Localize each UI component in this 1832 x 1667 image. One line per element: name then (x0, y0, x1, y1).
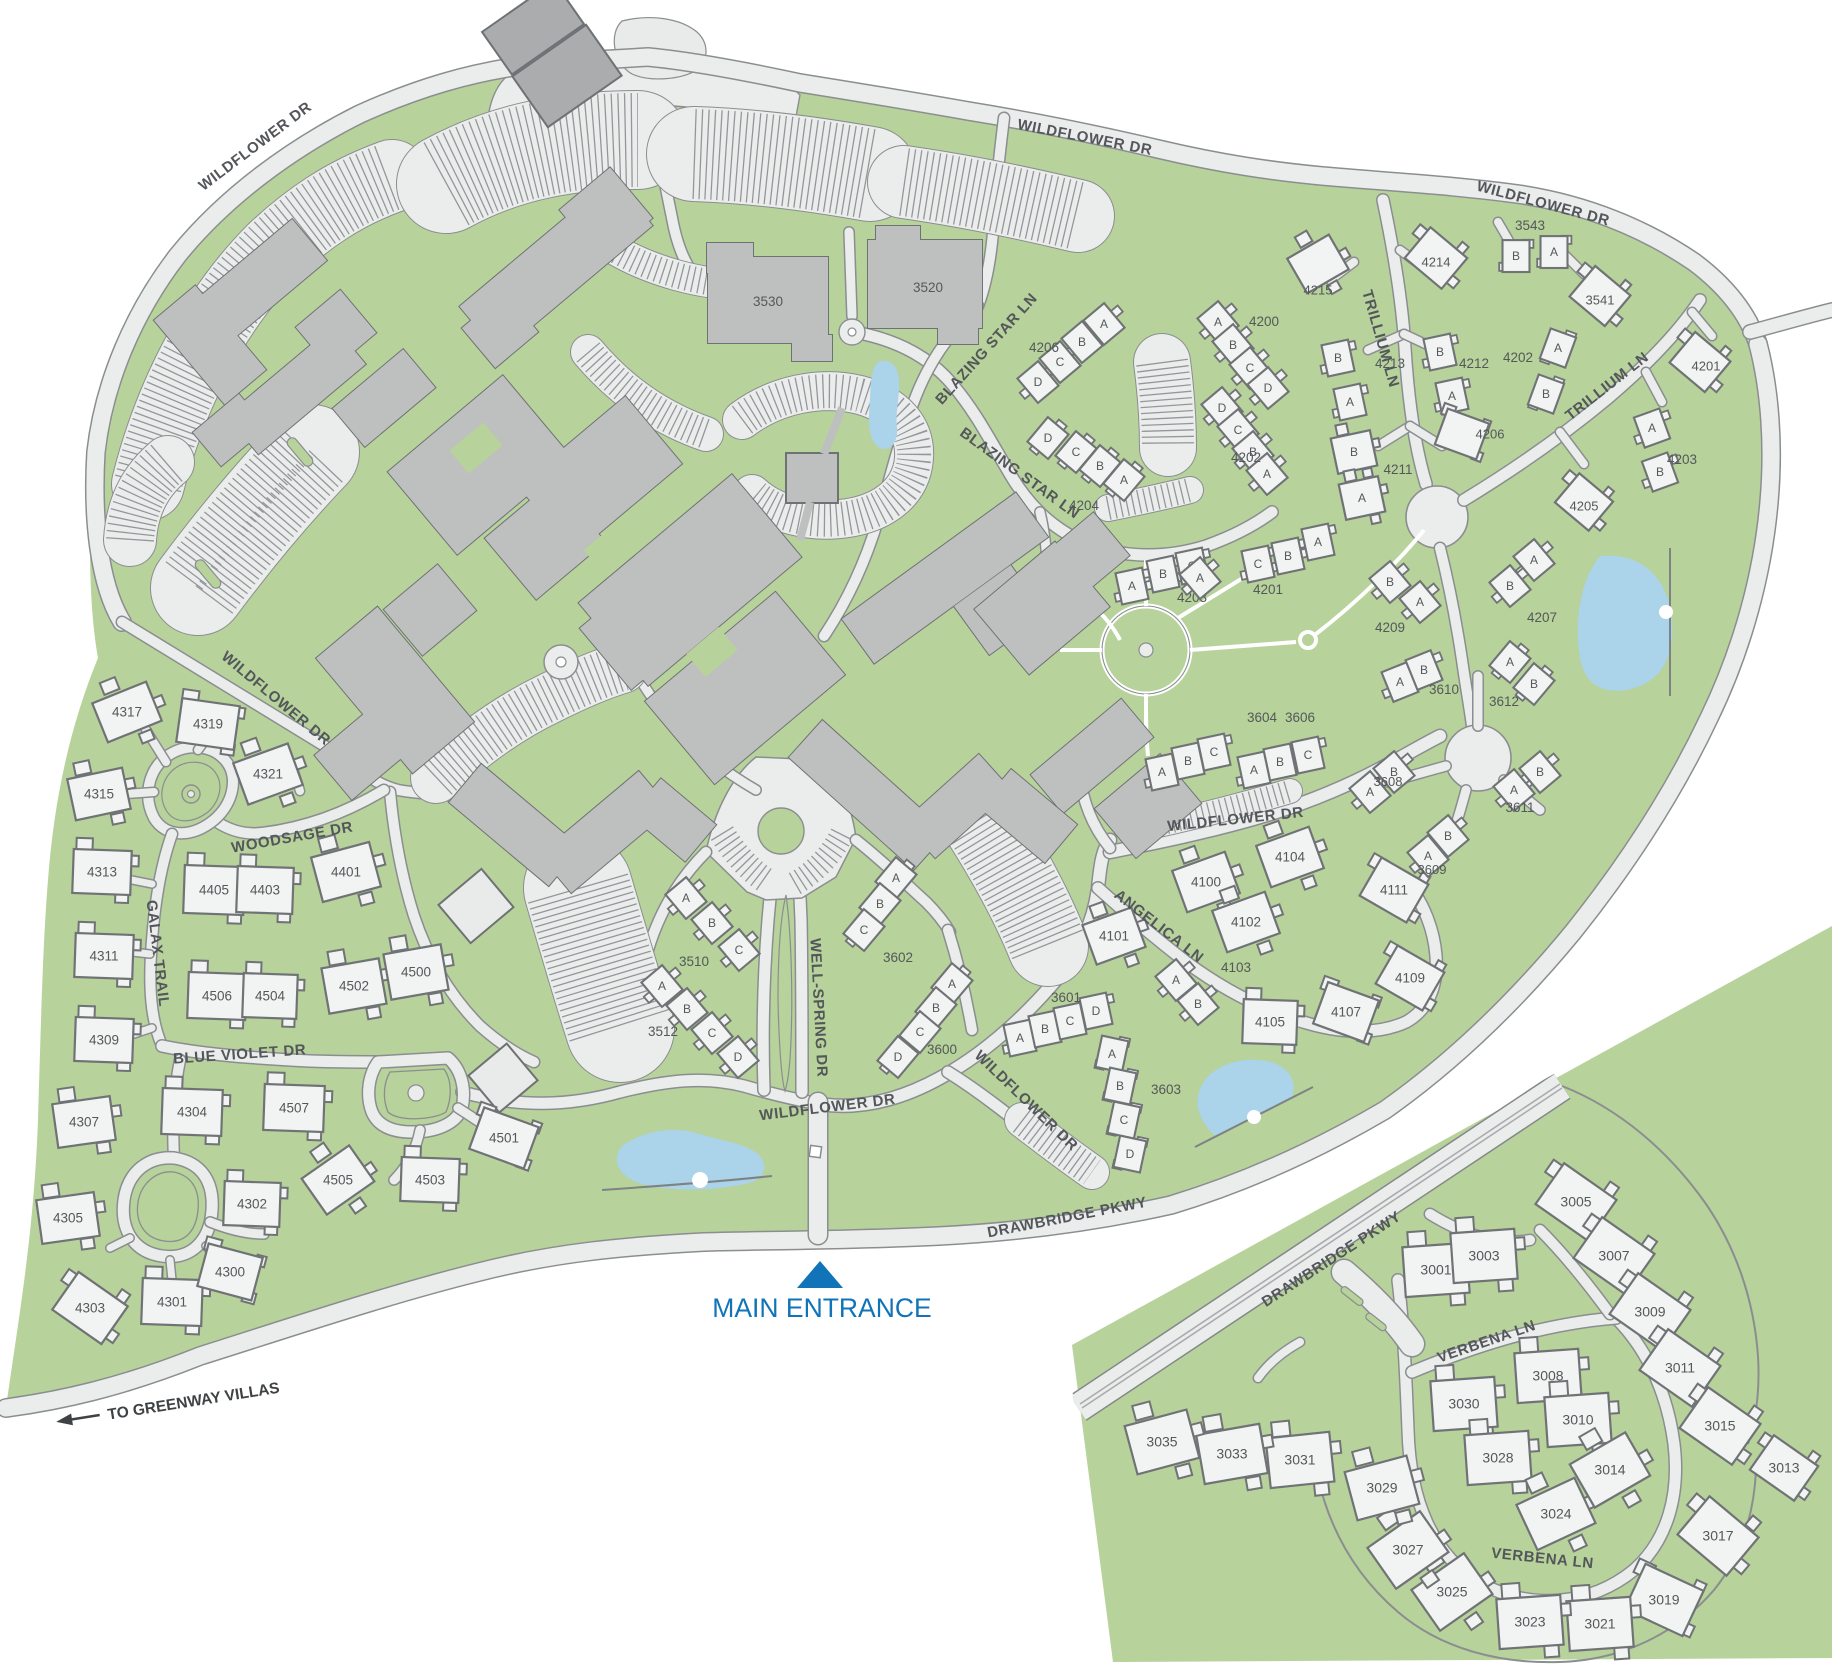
svg-text:4214: 4214 (1422, 255, 1451, 270)
svg-text:4505: 4505 (323, 1173, 353, 1188)
svg-text:C: C (1246, 361, 1255, 375)
svg-text:3610: 3610 (1429, 682, 1459, 697)
svg-text:A: A (948, 977, 956, 991)
svg-text:B: B (1512, 249, 1520, 263)
svg-text:4300: 4300 (215, 1265, 245, 1280)
svg-text:4104: 4104 (1275, 850, 1306, 865)
svg-text:4100: 4100 (1191, 875, 1221, 890)
svg-text:A: A (1506, 655, 1514, 669)
svg-text:4211: 4211 (1383, 462, 1412, 477)
svg-text:A: A (1346, 395, 1354, 409)
svg-text:3017: 3017 (1702, 1528, 1733, 1544)
svg-text:B: B (1041, 1022, 1049, 1036)
svg-text:D: D (1092, 1004, 1101, 1018)
svg-text:3007: 3007 (1598, 1248, 1629, 1264)
svg-text:B: B (1334, 351, 1342, 365)
svg-text:3025: 3025 (1436, 1584, 1467, 1600)
svg-text:4215: 4215 (1304, 283, 1333, 298)
svg-text:4504: 4504 (255, 989, 286, 1004)
svg-text:4313: 4313 (87, 865, 117, 880)
svg-text:A: A (1448, 389, 1456, 403)
svg-text:4501: 4501 (489, 1131, 519, 1146)
svg-text:4319: 4319 (193, 717, 223, 732)
svg-text:D: D (734, 1050, 743, 1064)
svg-text:C: C (1254, 557, 1263, 571)
svg-text:3029: 3029 (1366, 1480, 1397, 1496)
svg-text:A: A (1396, 675, 1404, 689)
svg-text:A: A (1416, 595, 1424, 609)
svg-text:B: B (1194, 997, 1202, 1011)
svg-text:3003: 3003 (1468, 1248, 1499, 1264)
svg-text:4315: 4315 (84, 787, 114, 802)
svg-text:D: D (894, 1050, 903, 1064)
svg-text:3021: 3021 (1584, 1616, 1615, 1632)
svg-text:3014: 3014 (1594, 1462, 1625, 1478)
svg-text:3530: 3530 (753, 294, 783, 309)
svg-text:3011: 3011 (1665, 1360, 1695, 1376)
svg-text:3027: 3027 (1392, 1542, 1423, 1558)
svg-text:A: A (1108, 1047, 1116, 1061)
svg-text:A: A (1158, 765, 1166, 779)
svg-text:3019: 3019 (1648, 1592, 1679, 1608)
svg-text:B: B (1420, 663, 1428, 677)
svg-text:4307: 4307 (69, 1115, 99, 1130)
svg-text:3520: 3520 (913, 280, 943, 295)
svg-text:A: A (1263, 467, 1271, 481)
svg-text:4102: 4102 (1231, 915, 1261, 930)
svg-text:B: B (932, 1001, 940, 1015)
svg-text:D: D (1126, 1147, 1135, 1161)
svg-text:3510: 3510 (679, 954, 709, 969)
svg-text:4205: 4205 (1570, 499, 1599, 514)
svg-text:4212: 4212 (1459, 356, 1489, 371)
svg-text:A: A (892, 871, 900, 885)
svg-text:A: A (1196, 571, 1204, 585)
svg-text:3009: 3009 (1634, 1304, 1665, 1320)
svg-text:4101: 4101 (1099, 929, 1129, 944)
svg-text:B: B (1184, 754, 1192, 768)
svg-text:C: C (1210, 745, 1219, 759)
svg-text:3001: 3001 (1420, 1262, 1451, 1278)
svg-text:4109: 4109 (1395, 971, 1425, 986)
svg-text:3005: 3005 (1560, 1194, 1591, 1210)
svg-text:3604: 3604 (1247, 710, 1278, 725)
svg-text:4206: 4206 (1476, 427, 1505, 442)
svg-text:4301: 4301 (157, 1295, 187, 1310)
svg-text:A: A (1648, 421, 1656, 435)
svg-text:B: B (876, 897, 884, 911)
svg-text:A: A (1554, 341, 1562, 355)
svg-text:3024: 3024 (1540, 1506, 1571, 1522)
svg-text:4321: 4321 (253, 767, 283, 782)
svg-text:A: A (1016, 1031, 1024, 1045)
svg-text:A: A (1510, 783, 1518, 797)
svg-text:3028: 3028 (1482, 1450, 1513, 1466)
svg-text:A: A (1120, 473, 1128, 487)
svg-text:B: B (1536, 765, 1544, 779)
svg-text:A: A (658, 979, 666, 993)
svg-text:4105: 4105 (1255, 1015, 1285, 1030)
svg-text:B: B (708, 916, 716, 930)
svg-text:3035: 3035 (1146, 1434, 1177, 1450)
svg-text:4103: 4103 (1221, 960, 1251, 975)
svg-text:4201: 4201 (1692, 359, 1721, 374)
svg-text:3609: 3609 (1418, 862, 1447, 877)
svg-text:3512: 3512 (648, 1024, 678, 1039)
svg-text:B: B (1078, 335, 1086, 349)
svg-text:B: B (1276, 755, 1284, 769)
svg-text:3030: 3030 (1448, 1396, 1479, 1412)
svg-text:B: B (1506, 579, 1514, 593)
svg-text:B: B (1096, 459, 1104, 473)
svg-text:3031: 3031 (1284, 1452, 1315, 1468)
svg-text:4206: 4206 (1029, 340, 1059, 355)
svg-text:C: C (735, 943, 744, 957)
svg-text:4507: 4507 (279, 1101, 309, 1116)
svg-text:A: A (1214, 315, 1222, 329)
svg-text:C: C (1304, 748, 1313, 762)
svg-text:C: C (860, 923, 869, 937)
svg-text:D: D (1264, 381, 1273, 395)
svg-text:B: B (683, 1002, 691, 1016)
svg-text:4303: 4303 (75, 1301, 105, 1316)
svg-text:C: C (1072, 445, 1081, 459)
svg-text:4203: 4203 (1667, 452, 1697, 467)
svg-text:B: B (1284, 549, 1292, 563)
svg-text:4305: 4305 (53, 1211, 83, 1226)
svg-text:A: A (1128, 579, 1136, 593)
svg-text:4311: 4311 (89, 949, 118, 964)
svg-text:B: B (1542, 387, 1550, 401)
svg-text:D: D (1218, 401, 1227, 415)
svg-text:3033: 3033 (1216, 1446, 1247, 1462)
svg-text:A: A (1530, 553, 1538, 567)
svg-text:A: A (682, 891, 690, 905)
svg-text:C: C (708, 1026, 717, 1040)
svg-text:C: C (916, 1025, 925, 1039)
svg-text:B: B (1530, 677, 1538, 691)
svg-text:MAIN ENTRANCE: MAIN ENTRANCE (712, 1293, 931, 1323)
svg-text:4304: 4304 (177, 1105, 208, 1120)
svg-text:B: B (1656, 465, 1664, 479)
svg-text:B: B (1350, 445, 1358, 459)
svg-text:4503: 4503 (415, 1173, 445, 1188)
svg-text:B: B (1229, 338, 1237, 352)
svg-text:4500: 4500 (401, 965, 431, 980)
svg-text:3611: 3611 (1505, 800, 1534, 815)
svg-text:C: C (1234, 423, 1243, 437)
svg-text:4302: 4302 (237, 1197, 267, 1212)
svg-text:4207: 4207 (1527, 610, 1557, 625)
svg-text:D: D (1034, 375, 1043, 389)
svg-text:3015: 3015 (1704, 1418, 1735, 1434)
svg-text:3606: 3606 (1285, 710, 1315, 725)
svg-text:4317: 4317 (112, 705, 142, 720)
svg-text:4506: 4506 (202, 989, 232, 1004)
svg-text:A: A (1100, 317, 1108, 331)
svg-text:3608: 3608 (1374, 774, 1403, 789)
svg-text:C: C (1056, 355, 1065, 369)
svg-text:A: A (1172, 973, 1180, 987)
svg-text:4403: 4403 (250, 883, 280, 898)
svg-text:4502: 4502 (339, 979, 369, 994)
svg-text:3013: 3013 (1768, 1460, 1799, 1476)
svg-text:B: B (1436, 345, 1444, 359)
svg-text:3612: 3612 (1489, 694, 1519, 709)
svg-text:A: A (1314, 535, 1322, 549)
svg-text:A: A (1358, 491, 1366, 505)
svg-text:3600: 3600 (927, 1042, 957, 1057)
svg-text:B: B (1159, 567, 1167, 581)
svg-text:4202: 4202 (1231, 450, 1261, 465)
svg-text:A: A (1550, 245, 1558, 259)
svg-text:4405: 4405 (199, 883, 229, 898)
svg-text:3010: 3010 (1562, 1412, 1593, 1428)
svg-text:A: A (1250, 763, 1258, 777)
svg-text:3543: 3543 (1515, 218, 1545, 233)
svg-text:3601: 3601 (1051, 990, 1081, 1005)
svg-text:4202: 4202 (1503, 350, 1533, 365)
svg-text:B: B (1444, 829, 1452, 843)
svg-text:C: C (1120, 1113, 1129, 1127)
svg-text:B: B (1386, 575, 1394, 589)
svg-text:4401: 4401 (331, 865, 361, 880)
svg-text:4111: 4111 (1380, 883, 1408, 898)
svg-text:3541: 3541 (1586, 293, 1615, 308)
svg-text:D: D (1044, 431, 1053, 445)
svg-text:B: B (1116, 1079, 1124, 1093)
svg-text:3602: 3602 (883, 950, 913, 965)
svg-text:C: C (1066, 1014, 1075, 1028)
svg-text:3023: 3023 (1514, 1614, 1545, 1630)
svg-text:3603: 3603 (1151, 1082, 1181, 1097)
svg-text:4309: 4309 (89, 1033, 119, 1048)
svg-text:4201: 4201 (1253, 582, 1283, 597)
svg-text:4209: 4209 (1375, 620, 1405, 635)
svg-text:4107: 4107 (1331, 1005, 1361, 1020)
svg-text:4200: 4200 (1249, 314, 1279, 329)
